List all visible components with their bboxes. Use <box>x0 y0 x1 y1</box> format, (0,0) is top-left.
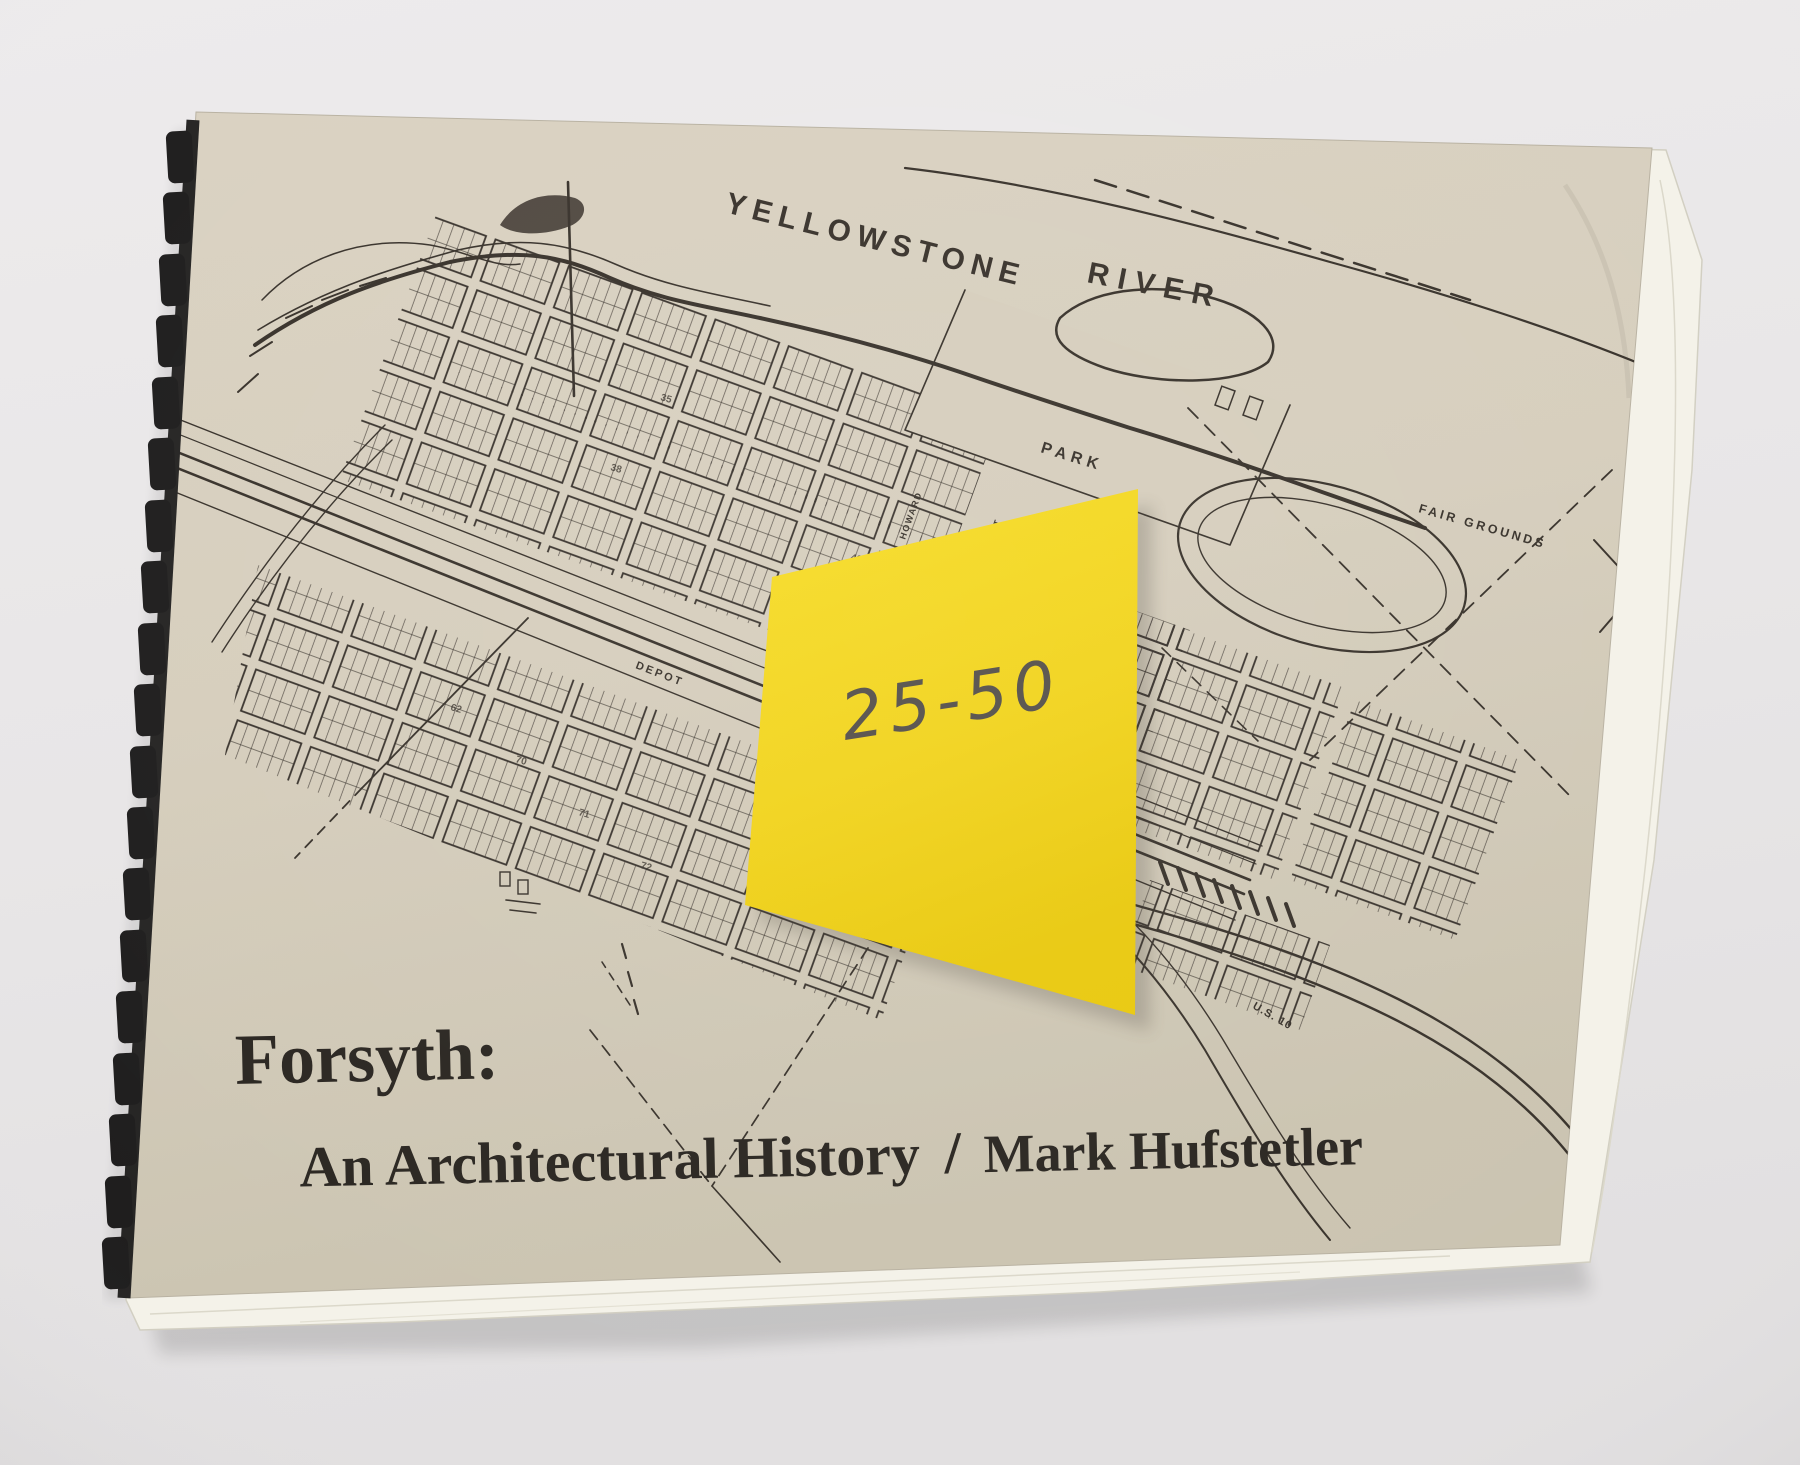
photo-of-book: YELLOWSTONE RIVER PARK FAIR GROUNDS DEPO… <box>0 0 1800 1465</box>
book-title-line1: Forsyth: <box>234 1014 500 1100</box>
book-title-line2: An Architectural History <box>299 1122 921 1200</box>
title-separator: / <box>943 1120 963 1186</box>
book-author: Mark Hufstetler <box>983 1116 1364 1184</box>
